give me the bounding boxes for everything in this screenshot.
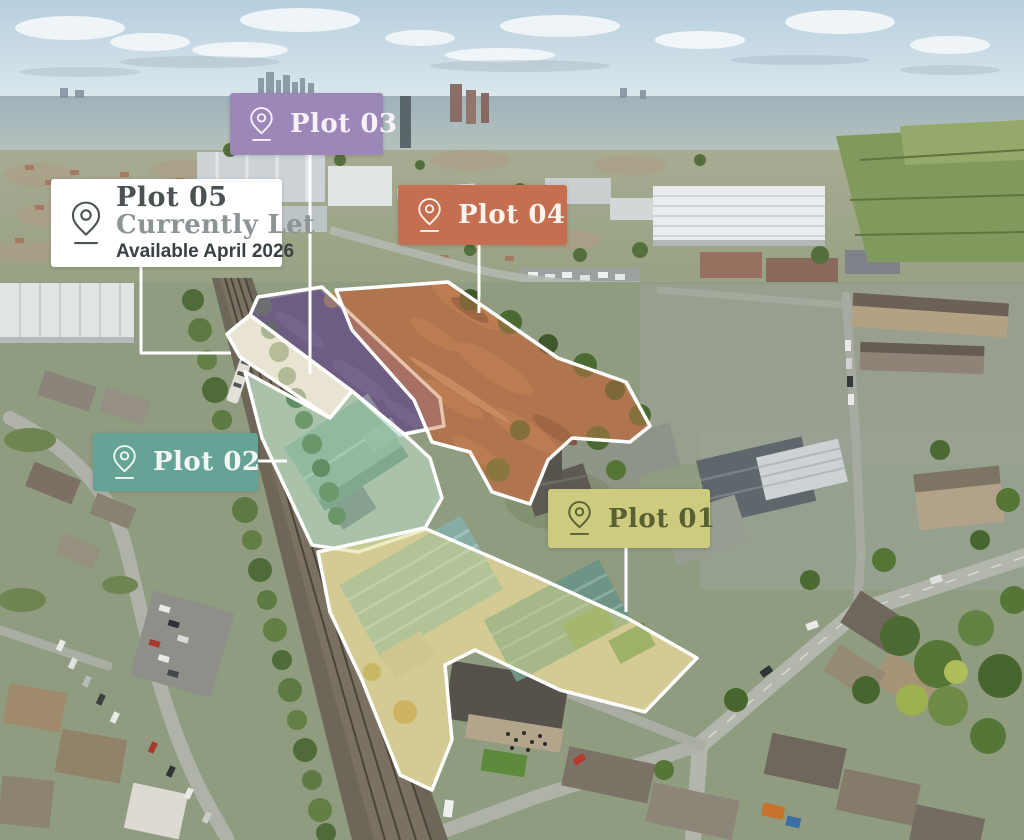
plot-03-label: Plot 03 [290, 109, 398, 139]
sky [0, 0, 1024, 104]
location-pin-icon [69, 200, 103, 247]
plot-05-marker[interactable]: Plot 05 Currently Let Available April 20… [51, 179, 282, 267]
plot-03-marker[interactable]: Plot 03 [230, 93, 383, 155]
plot-02-label: Plot 02 [153, 447, 261, 477]
site-plan-image: Plot 03 Plot 04 Plot 02 Plot 01 Plot 05 … [0, 0, 1024, 840]
fields [836, 120, 1024, 262]
plot-04-marker[interactable]: Plot 04 [398, 185, 567, 245]
location-pin-icon [111, 444, 138, 481]
plot-04-label: Plot 04 [458, 200, 566, 230]
location-pin-icon [248, 106, 275, 143]
aerial-photograph [0, 0, 1024, 840]
plot-05-status: Currently Let [116, 212, 315, 239]
plot-05-availability: Available April 2026 [116, 242, 315, 261]
location-pin-icon [566, 500, 593, 537]
plot-01-label: Plot 01 [608, 504, 716, 534]
plot-05-label: Plot 05 [116, 184, 315, 212]
location-pin-icon [416, 197, 443, 234]
plot-01-marker[interactable]: Plot 01 [548, 489, 710, 548]
plot-02-marker[interactable]: Plot 02 [93, 433, 258, 491]
